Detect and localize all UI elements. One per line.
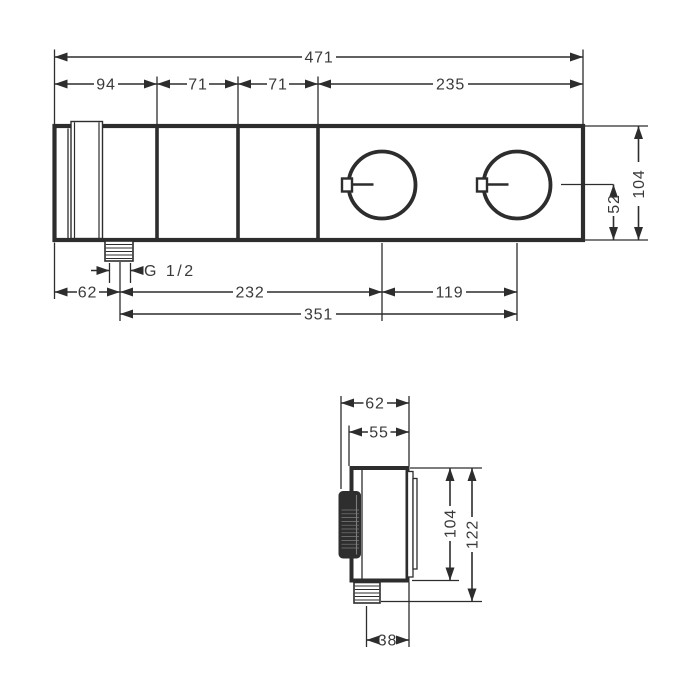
dim-label-38: 38 [378, 633, 397, 650]
dim-depth-body: 55 [349, 425, 409, 442]
dim-label-104-side: 104 [443, 509, 460, 538]
dim-overall-width: 471 [55, 50, 584, 67]
dim-label-62-side: 62 [365, 396, 384, 413]
dim-label-235: 235 [436, 77, 465, 94]
dim-label-71b: 71 [268, 77, 287, 94]
dim-label-351: 351 [304, 307, 333, 324]
wall-plate-step-1 [408, 472, 414, 578]
dimension-drawing: 471 94 71 71 235 [0, 0, 700, 700]
dim-label-g12: G 1/2 [144, 263, 196, 280]
front-view: 471 94 71 71 235 [55, 50, 649, 324]
dim-label-119: 119 [436, 285, 464, 302]
dim-segments-row: 94 71 71 235 [55, 77, 584, 94]
dim-label-232: 232 [235, 285, 264, 302]
knob-1-index-tab [342, 179, 352, 192]
dim-label-52: 52 [606, 194, 623, 213]
technical-drawing-page: 471 94 71 71 235 [0, 0, 700, 700]
side-view: 62 55 [339, 396, 483, 650]
wall-plate-step-2 [413, 479, 417, 570]
dim-label-471: 471 [304, 50, 333, 67]
dim-label-122: 122 [465, 520, 482, 549]
outlet-thread-side [354, 583, 380, 604]
outlet-thread-front [105, 241, 133, 261]
knob-grip [339, 491, 362, 559]
dim-outlet-to-knob2: 351 [120, 307, 517, 324]
dim-label-71a: 71 [188, 77, 207, 94]
spout-cap [71, 122, 103, 239]
dim-outlet-thread-callout: G 1/2 [91, 263, 196, 280]
dim-label-94: 94 [96, 77, 115, 94]
dim-label-104-front: 104 [631, 169, 648, 198]
dim-depth-overall: 62 [341, 396, 409, 413]
dim-label-62-front: 62 [78, 285, 97, 302]
dim-centers-row: 62 232 119 [55, 285, 518, 302]
knob-side-profile [339, 491, 362, 559]
knob-2-index-tab [477, 179, 487, 192]
dim-label-55: 55 [369, 425, 388, 442]
valve-body-side [352, 468, 418, 581]
